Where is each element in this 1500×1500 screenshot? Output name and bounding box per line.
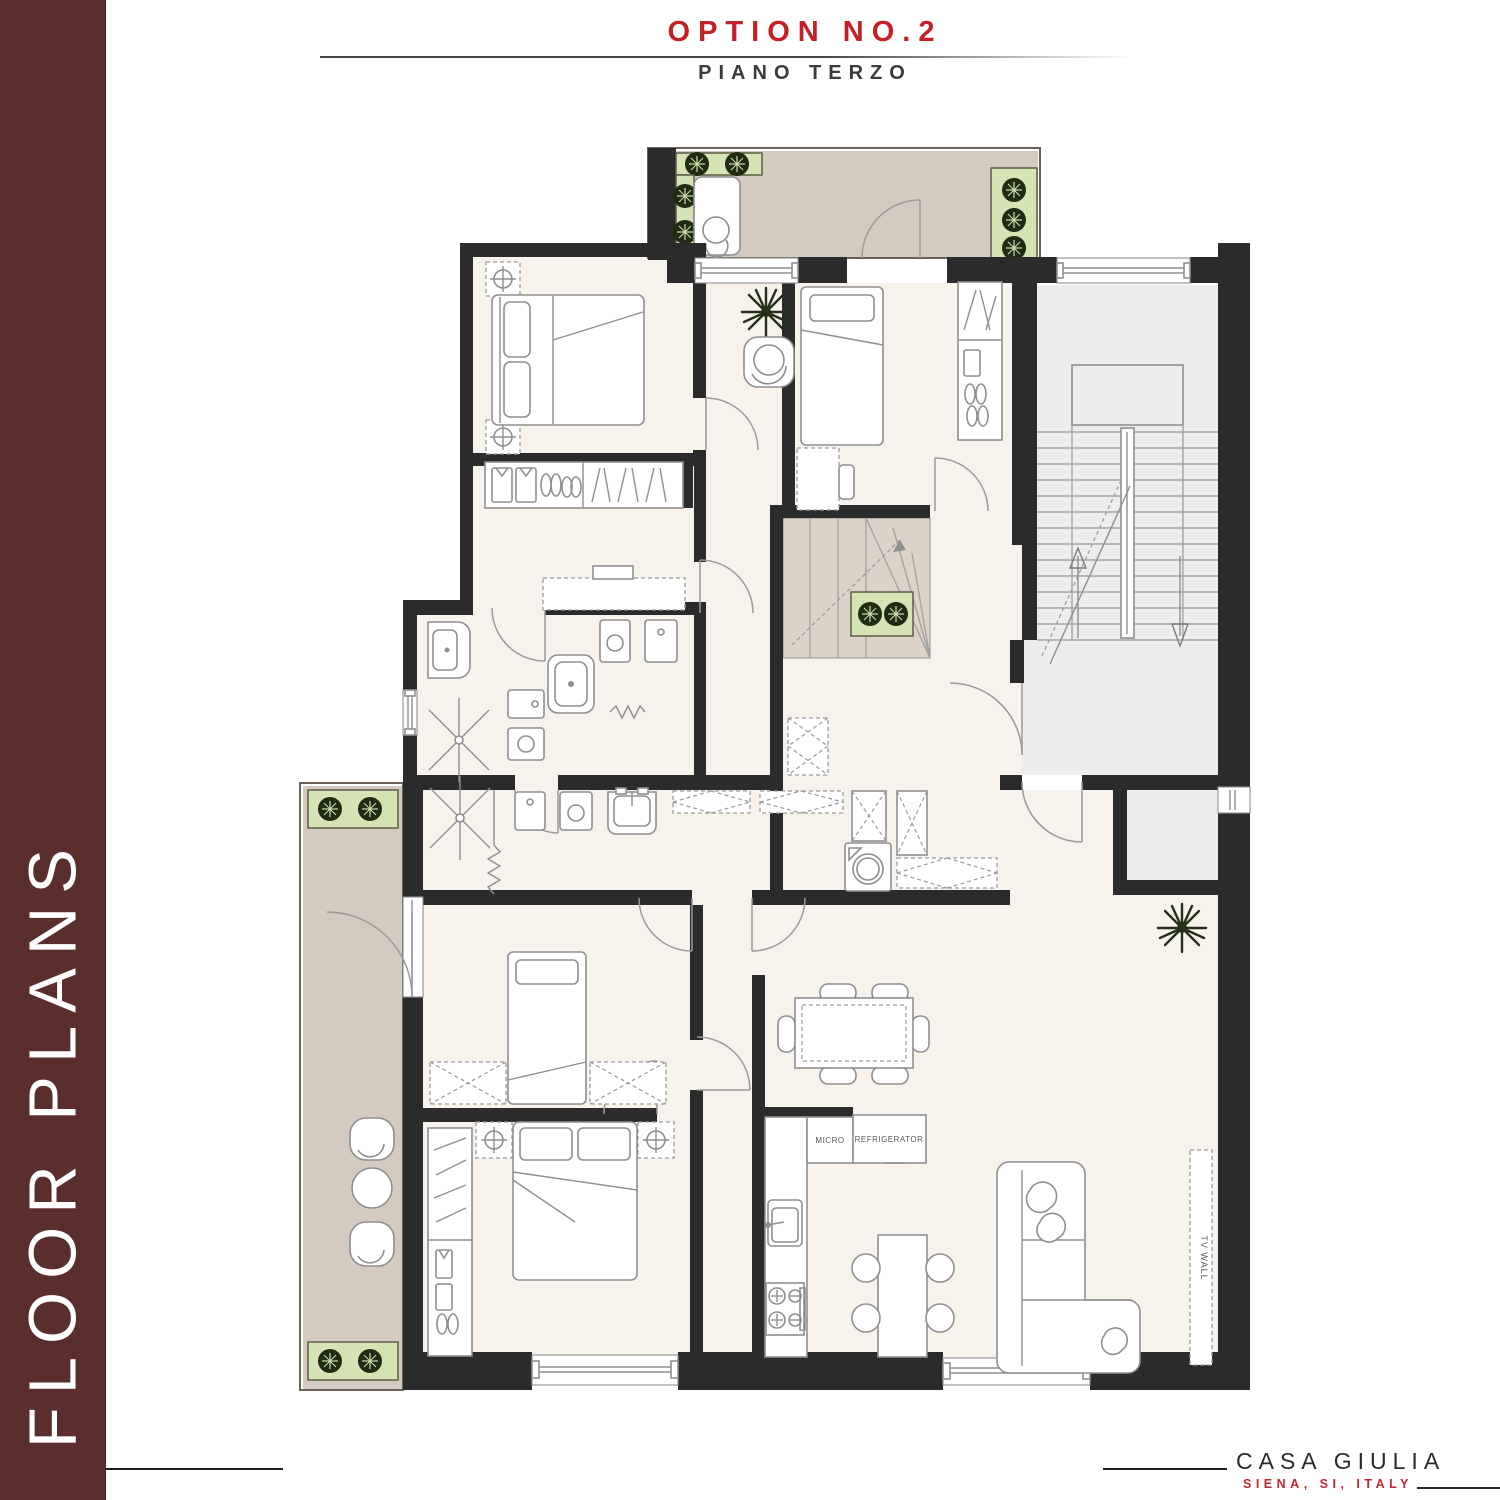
island: [878, 1235, 927, 1357]
pillow: [504, 362, 530, 417]
desk: [543, 578, 685, 610]
desk-monitor: [593, 566, 633, 579]
bidet: [560, 792, 592, 830]
stool: [852, 1304, 880, 1332]
stool: [852, 1254, 880, 1282]
window: [403, 690, 417, 735]
toilet: [600, 620, 630, 662]
left-balcony: [300, 783, 403, 1390]
footer-left-rule: [105, 1468, 283, 1470]
footer-rule-red: [1417, 1487, 1500, 1489]
balcony-door: [403, 897, 423, 997]
bidet: [645, 620, 677, 662]
cabinet: [673, 791, 750, 813]
balcony-table: [352, 1168, 392, 1208]
balcony-chair: [350, 1222, 394, 1266]
tv-wall-label: TV WALL: [1199, 1235, 1209, 1280]
pillow: [520, 1128, 572, 1160]
cabinet: [788, 718, 828, 775]
footer-project-name: CASA GIULIA: [1236, 1448, 1445, 1475]
chair: [820, 1067, 856, 1084]
balcony-chair: [350, 1118, 394, 1160]
footer-rule: [1103, 1468, 1227, 1470]
kitchen-sink: [768, 1200, 802, 1246]
window: [695, 258, 798, 283]
stool: [926, 1304, 954, 1332]
stool: [926, 1254, 954, 1282]
cabinet: [760, 791, 843, 813]
storage-floor: [1127, 790, 1222, 882]
plant: [742, 288, 790, 336]
wardrobe: [428, 1128, 472, 1356]
chair: [872, 1067, 908, 1084]
refrigerator-label: REFRIGERATOR: [855, 1135, 924, 1144]
internal-stair: [783, 518, 930, 658]
cabinet: [897, 858, 997, 888]
page: OPTION NO.2 PIANO TERZO FLOOR PLANS: [0, 0, 1500, 1500]
pillow: [578, 1128, 630, 1160]
floor-plan-svg: MICRO REFRIGERATOR TV WALL: [0, 0, 1500, 1500]
plant: [1158, 904, 1206, 952]
micro-label: MICRO: [815, 1136, 844, 1145]
pillow: [516, 960, 578, 984]
pillow: [810, 295, 874, 321]
window: [532, 1355, 678, 1385]
top-balcony: [648, 148, 1040, 260]
toilet: [515, 792, 545, 830]
pillow: [504, 302, 530, 357]
desk: [797, 448, 839, 510]
chair: [912, 1016, 929, 1052]
bidet: [508, 728, 544, 760]
window: [1218, 787, 1250, 813]
chair: [778, 1016, 795, 1052]
dining-table: [795, 998, 913, 1068]
footer-location: SIENA, SI, ITALY: [1243, 1477, 1413, 1491]
desk-chair: [839, 465, 854, 499]
window: [1057, 258, 1190, 283]
